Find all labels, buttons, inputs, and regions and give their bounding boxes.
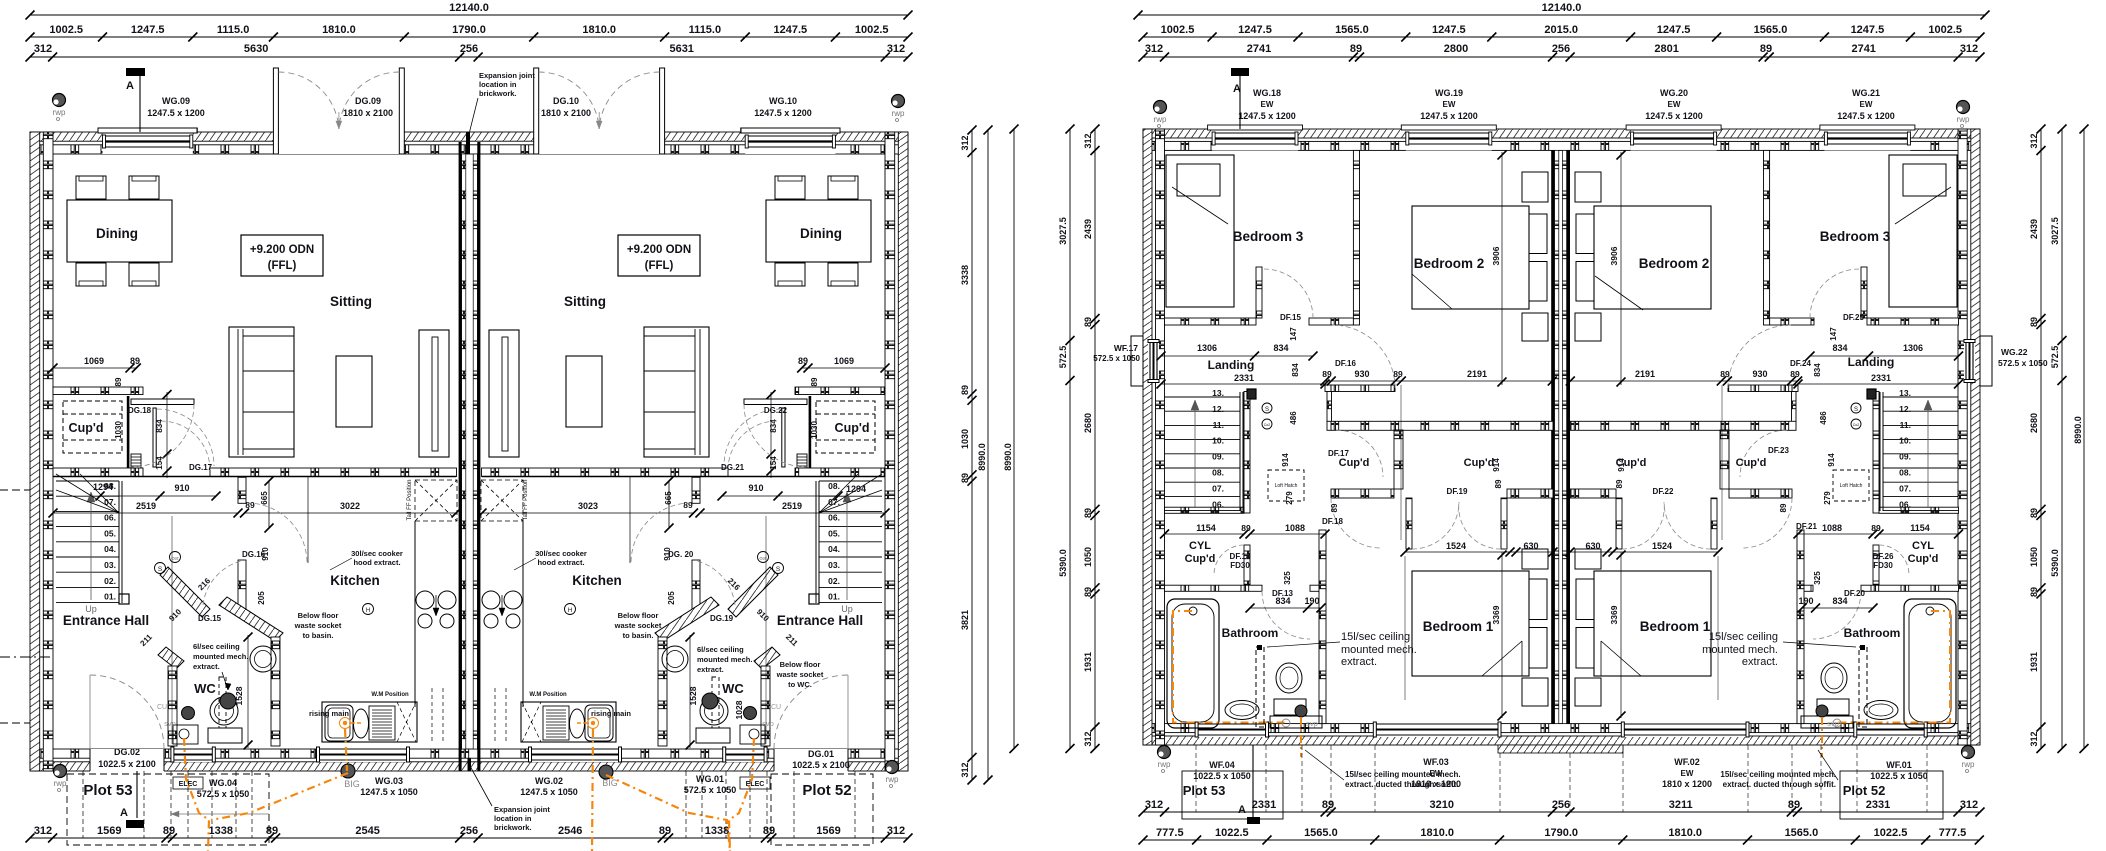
svg-text:89: 89	[659, 825, 671, 837]
svg-text:Expansion joint: Expansion joint	[494, 805, 550, 814]
svg-text:665: 665	[260, 491, 269, 505]
svg-text:572.5 x 1050: 572.5 x 1050	[684, 785, 737, 795]
svg-text:1022.5: 1022.5	[1215, 827, 1249, 839]
svg-text:Kitchen: Kitchen	[572, 573, 622, 588]
svg-text:03.: 03.	[828, 560, 840, 570]
svg-text:DF.23: DF.23	[1768, 446, 1789, 455]
svg-text:06.: 06.	[1899, 499, 1911, 509]
svg-text:CU: CU	[157, 704, 167, 711]
svg-text:2015.0: 2015.0	[1544, 24, 1578, 36]
svg-text:12140.0: 12140.0	[449, 2, 489, 14]
svg-text:777.5: 777.5	[1156, 827, 1184, 839]
svg-text:6l/sec ceiling: 6l/sec ceiling	[193, 642, 240, 651]
svg-text:2331: 2331	[1866, 799, 1890, 811]
svg-text:1022.5 x 1050: 1022.5 x 1050	[1870, 771, 1928, 781]
svg-text:1002.5: 1002.5	[855, 24, 889, 36]
svg-text:1115.0: 1115.0	[689, 24, 721, 36]
svg-text:CYL: CYL	[1189, 540, 1211, 552]
svg-text:2519: 2519	[782, 501, 802, 511]
svg-text:1306: 1306	[1903, 343, 1923, 353]
svg-text:89: 89	[163, 825, 175, 837]
svg-text:312: 312	[1145, 43, 1163, 55]
svg-text:5630: 5630	[244, 43, 268, 55]
svg-text:154: 154	[769, 456, 778, 470]
svg-text:1247.5 x 1200: 1247.5 x 1200	[1238, 111, 1296, 121]
svg-text:312: 312	[2029, 731, 2039, 746]
svg-text:89: 89	[763, 825, 775, 837]
svg-text:BIG: BIG	[344, 779, 360, 789]
svg-text:1247.5: 1247.5	[1432, 24, 1466, 36]
svg-text:Dining: Dining	[96, 226, 138, 241]
svg-text:910: 910	[748, 483, 763, 493]
svg-text:brickwork.: brickwork.	[494, 823, 532, 832]
svg-text:hood extract.: hood extract.	[537, 558, 584, 567]
svg-text:to basin.: to basin.	[623, 631, 654, 640]
svg-text:DF.22: DF.22	[1653, 487, 1674, 496]
svg-text:S: S	[1265, 407, 1269, 413]
svg-text:89: 89	[2029, 317, 2039, 327]
svg-text:08.: 08.	[828, 481, 840, 491]
svg-text:914: 914	[1492, 458, 1501, 472]
svg-text:834: 834	[1291, 363, 1300, 377]
svg-text:1154: 1154	[1196, 523, 1216, 533]
svg-text:15l/sec ceiling: 15l/sec ceiling	[1341, 631, 1410, 643]
svg-text:WG.21: WG.21	[1852, 88, 1880, 98]
svg-text:8990.0: 8990.0	[1003, 443, 1013, 471]
svg-text:10.: 10.	[1899, 436, 1911, 446]
svg-text:waste socket: waste socket	[776, 670, 824, 679]
svg-text:1247.5: 1247.5	[131, 24, 165, 36]
svg-text:190: 190	[1798, 596, 1813, 606]
svg-text:1247.5: 1247.5	[1238, 24, 1272, 36]
svg-text:89: 89	[1330, 503, 1339, 512]
svg-text:01.: 01.	[104, 592, 116, 602]
svg-text:1022.5 x 2100: 1022.5 x 2100	[792, 760, 850, 770]
svg-text:1810 x 1200: 1810 x 1200	[1662, 779, 1712, 789]
svg-text:312: 312	[1960, 43, 1978, 55]
svg-text:89: 89	[1393, 369, 1403, 379]
svg-text:Cup'd: Cup'd	[1736, 457, 1767, 469]
svg-text:89: 89	[1720, 369, 1730, 379]
svg-text:Bedroom 3: Bedroom 3	[1820, 229, 1891, 244]
svg-text:02.: 02.	[828, 576, 840, 586]
svg-text:777.5: 777.5	[1939, 827, 1967, 839]
svg-text:DG.21: DG.21	[721, 463, 745, 472]
svg-text:1247.5 x 1200: 1247.5 x 1200	[147, 108, 205, 118]
svg-text:154: 154	[155, 456, 164, 470]
svg-text:rwp: rwp	[53, 108, 66, 117]
svg-text:279: 279	[1823, 491, 1832, 505]
svg-text:1565.0: 1565.0	[1754, 24, 1788, 36]
svg-text:1931: 1931	[2029, 652, 2039, 672]
svg-text:1294: 1294	[846, 484, 866, 494]
svg-text:08.: 08.	[1212, 468, 1224, 478]
svg-text:30l/sec cooker: 30l/sec cooker	[535, 549, 587, 558]
svg-text:WG.09: WG.09	[162, 96, 190, 106]
svg-text:DF.19: DF.19	[1447, 487, 1468, 496]
svg-text:A: A	[120, 807, 128, 819]
svg-text:3369: 3369	[1609, 605, 1619, 624]
svg-text:Cup'd: Cup'd	[69, 421, 104, 435]
svg-text:2439: 2439	[2029, 219, 2039, 239]
svg-text:486: 486	[1819, 411, 1828, 425]
svg-text:1565.0: 1565.0	[1304, 827, 1338, 839]
svg-text:2331: 2331	[1234, 373, 1254, 383]
svg-text:DG.01: DG.01	[808, 749, 834, 759]
svg-text:8990.0: 8990.0	[977, 443, 987, 471]
svg-text:DG.02: DG.02	[114, 747, 140, 757]
svg-text:89: 89	[1790, 369, 1800, 379]
svg-text:WG.19: WG.19	[1435, 88, 1463, 98]
svg-text:WG.10: WG.10	[769, 96, 797, 106]
svg-text:Cup'd: Cup'd	[1464, 457, 1495, 469]
svg-text:rwp: rwp	[1957, 115, 1970, 124]
svg-text:665: 665	[664, 491, 673, 505]
svg-text:630: 630	[1523, 541, 1538, 551]
svg-text:312: 312	[1083, 133, 1093, 148]
svg-text:1565.0: 1565.0	[1785, 827, 1819, 839]
svg-text:834: 834	[1273, 343, 1288, 353]
svg-text:WF.17: WF.17	[1114, 343, 1138, 353]
svg-text:DG.19: DG.19	[710, 614, 734, 623]
svg-text:89: 89	[810, 377, 819, 386]
svg-text:910: 910	[174, 483, 189, 493]
svg-text:312: 312	[887, 825, 905, 837]
svg-text:89: 89	[2029, 587, 2039, 597]
svg-text:Dining: Dining	[800, 226, 842, 241]
svg-text:89: 89	[1760, 43, 1772, 55]
svg-text:89: 89	[1241, 523, 1251, 533]
svg-text:1565.0: 1565.0	[1335, 24, 1369, 36]
svg-text:1247.5 x 1200: 1247.5 x 1200	[1420, 111, 1478, 121]
svg-text:1050: 1050	[1083, 547, 1093, 567]
svg-text:15l/sec ceiling mounted mech.: 15l/sec ceiling mounted mech.	[1720, 770, 1836, 779]
svg-text:256: 256	[1552, 799, 1570, 811]
svg-text:30l/sec cooker: 30l/sec cooker	[351, 549, 403, 558]
svg-text:06.: 06.	[1212, 499, 1224, 509]
svg-text:834: 834	[1832, 343, 1847, 353]
svg-text:DG.09: DG.09	[355, 96, 381, 106]
svg-text:279: 279	[1285, 491, 1294, 505]
svg-text:Plot 52: Plot 52	[802, 782, 851, 799]
svg-text:07.: 07.	[1899, 483, 1911, 493]
svg-text:89: 89	[683, 500, 693, 510]
svg-text:Below floor: Below floor	[780, 660, 821, 669]
svg-text:svp: svp	[762, 719, 774, 728]
svg-text:WF.02: WF.02	[1674, 757, 1700, 767]
svg-text:Bedroom 2: Bedroom 2	[1639, 256, 1710, 271]
svg-text:5390.0: 5390.0	[1058, 549, 1068, 577]
svg-text:1069: 1069	[834, 356, 854, 366]
svg-text:Tall FF Position: Tall FF Position	[407, 479, 413, 520]
svg-text:2800: 2800	[1444, 43, 1468, 55]
svg-text:3211: 3211	[1669, 799, 1693, 811]
svg-text:89: 89	[1615, 479, 1624, 488]
svg-text:572.5 x 1050: 572.5 x 1050	[1998, 358, 2048, 368]
svg-text:1030: 1030	[960, 429, 970, 449]
svg-text:Entrance Hall: Entrance Hall	[63, 613, 149, 628]
svg-text:WG.20: WG.20	[1660, 88, 1688, 98]
svg-text:325: 325	[1283, 571, 1292, 585]
svg-text:10.: 10.	[1212, 436, 1224, 446]
svg-text:FD30: FD30	[1230, 561, 1250, 570]
svg-text:05.: 05.	[104, 528, 116, 538]
svg-text:A: A	[126, 80, 134, 92]
svg-text:EW: EW	[1860, 100, 1873, 109]
svg-text:3027.5: 3027.5	[2050, 217, 2060, 245]
svg-text:DF.25: DF.25	[1843, 313, 1864, 322]
svg-text:1022.5: 1022.5	[1874, 827, 1908, 839]
svg-text:1069: 1069	[84, 356, 104, 366]
svg-text:06.: 06.	[828, 513, 840, 523]
svg-text:910: 910	[261, 547, 270, 561]
svg-text:Landing: Landing	[1208, 358, 1255, 372]
svg-text:brickwork.: brickwork.	[479, 89, 517, 98]
svg-text:572.5 x 1050: 572.5 x 1050	[197, 789, 250, 799]
svg-text:12140.0: 12140.0	[1542, 2, 1582, 14]
svg-text:09.: 09.	[1899, 452, 1911, 462]
svg-text:89: 89	[2029, 508, 2039, 518]
svg-text:svp: svp	[164, 719, 176, 728]
svg-text:DF.15: DF.15	[1280, 313, 1301, 322]
svg-text:15l/sec ceiling mounted mech.: 15l/sec ceiling mounted mech.	[1345, 770, 1461, 779]
svg-text:mounted mech.: mounted mech.	[697, 655, 752, 664]
svg-text:Cup'd: Cup'd	[1908, 553, 1939, 565]
svg-text:2331: 2331	[1871, 373, 1891, 383]
svg-text:147: 147	[1289, 327, 1298, 341]
svg-text:WC: WC	[194, 681, 216, 696]
svg-text:H: H	[568, 608, 572, 614]
svg-text:572.5 x 1050: 572.5 x 1050	[1093, 354, 1140, 363]
svg-text:Co2: Co2	[172, 557, 179, 561]
svg-text:2545: 2545	[355, 825, 379, 837]
svg-text:04.: 04.	[828, 544, 840, 554]
svg-text:Co2: Co2	[760, 557, 767, 561]
svg-text:1524: 1524	[1446, 541, 1466, 551]
svg-text:06.: 06.	[104, 513, 116, 523]
svg-text:CYL: CYL	[1912, 540, 1934, 552]
svg-text:89: 89	[1788, 799, 1800, 811]
svg-text:WG.22: WG.22	[2001, 347, 2028, 357]
svg-text:rwp: rwp	[54, 779, 67, 788]
svg-text:312: 312	[34, 43, 52, 55]
svg-text:1247.5 x 1200: 1247.5 x 1200	[1837, 111, 1895, 121]
svg-text:WG.02: WG.02	[535, 776, 563, 786]
svg-text:3906: 3906	[1491, 246, 1501, 265]
svg-text:312: 312	[887, 43, 905, 55]
svg-text:834: 834	[1832, 596, 1847, 606]
svg-text:2680: 2680	[2029, 413, 2039, 433]
svg-text:1810 x 2100: 1810 x 2100	[541, 108, 591, 118]
svg-text:256: 256	[1552, 43, 1570, 55]
svg-text:WG.04: WG.04	[209, 778, 237, 788]
svg-text:89: 89	[960, 385, 970, 395]
svg-text:3027.5: 3027.5	[1058, 217, 1068, 245]
svg-text:1247.5 x 1050: 1247.5 x 1050	[360, 787, 418, 797]
svg-text:1790.0: 1790.0	[452, 24, 486, 36]
svg-text:89: 89	[1350, 43, 1362, 55]
svg-text:1088: 1088	[1285, 523, 1305, 533]
svg-text:FD30: FD30	[1873, 561, 1893, 570]
svg-text:Below floor: Below floor	[618, 611, 659, 620]
svg-text:(FFL): (FFL)	[268, 260, 297, 272]
svg-text:DF.21: DF.21	[1796, 522, 1817, 531]
svg-text:89: 89	[266, 825, 278, 837]
svg-text:rising main: rising main	[591, 709, 631, 718]
svg-text:Expansion joint: Expansion joint	[479, 71, 535, 80]
svg-text:1247.5: 1247.5	[1851, 24, 1885, 36]
svg-text:EW: EW	[1443, 100, 1456, 109]
svg-text:12.: 12.	[1899, 404, 1911, 414]
svg-text:256: 256	[460, 43, 478, 55]
svg-text:EW: EW	[1668, 100, 1681, 109]
svg-text:6l/sec ceiling: 6l/sec ceiling	[697, 645, 744, 654]
svg-text:1030: 1030	[114, 421, 123, 439]
svg-text:(FFL): (FFL)	[645, 260, 674, 272]
svg-text:waste socket: waste socket	[294, 621, 342, 630]
svg-text:S: S	[776, 566, 781, 573]
svg-text:3023: 3023	[578, 501, 598, 511]
svg-text:1790.0: 1790.0	[1544, 827, 1578, 839]
svg-text:89: 89	[1083, 587, 1093, 597]
svg-text:Bedroom 1: Bedroom 1	[1423, 619, 1494, 634]
svg-text:3022: 3022	[340, 501, 360, 511]
svg-text:89: 89	[130, 356, 140, 366]
svg-text:3338: 3338	[960, 265, 970, 285]
svg-text:mounted mech.: mounted mech.	[1341, 644, 1417, 656]
svg-text:1115.0: 1115.0	[217, 24, 249, 36]
svg-text:89: 89	[1779, 503, 1788, 512]
svg-text:Bedroom 2: Bedroom 2	[1414, 256, 1485, 271]
svg-text:1247.5 x 1200: 1247.5 x 1200	[754, 108, 812, 118]
svg-text:Cup'd: Cup'd	[835, 421, 870, 435]
svg-text:1569: 1569	[97, 825, 121, 837]
svg-text:312: 312	[960, 135, 970, 150]
svg-text:rwp: rwp	[892, 109, 905, 118]
svg-text:rwp: rwp	[886, 775, 899, 784]
svg-text:11.: 11.	[1900, 420, 1911, 430]
svg-text:205: 205	[667, 591, 676, 605]
svg-text:DF.26: DF.26	[1873, 552, 1894, 561]
svg-text:914: 914	[1617, 458, 1626, 472]
svg-text:Co2: Co2	[1853, 423, 1860, 427]
svg-text:rising main: rising main	[309, 709, 349, 718]
svg-text:3821: 3821	[960, 610, 970, 630]
svg-text:834: 834	[1813, 363, 1822, 377]
svg-text:312: 312	[1960, 799, 1978, 811]
svg-text:+9.200 ODN: +9.200 ODN	[627, 244, 691, 256]
svg-text:1810.0: 1810.0	[1668, 827, 1702, 839]
svg-text:1030: 1030	[810, 421, 819, 439]
svg-text:2546: 2546	[558, 825, 582, 837]
svg-text:1154: 1154	[1910, 523, 1930, 533]
svg-text:extract.: extract.	[1341, 656, 1377, 668]
svg-text:11.: 11.	[1213, 420, 1224, 430]
svg-text:325: 325	[1813, 571, 1822, 585]
svg-text:312: 312	[34, 825, 52, 837]
svg-text:Sitting: Sitting	[564, 294, 606, 309]
svg-text:914: 914	[1827, 453, 1836, 467]
svg-text:1002.5: 1002.5	[1161, 24, 1195, 36]
svg-text:08.: 08.	[104, 481, 116, 491]
svg-text:W.M Position: W.M Position	[371, 692, 409, 698]
svg-text:1306: 1306	[1197, 343, 1217, 353]
svg-text:89: 89	[245, 500, 255, 510]
svg-text:Sitting: Sitting	[330, 294, 372, 309]
svg-text:1002.5: 1002.5	[1928, 24, 1962, 36]
svg-text:S: S	[158, 566, 163, 573]
svg-text:Plot 53: Plot 53	[1183, 783, 1226, 798]
svg-text:WG.18: WG.18	[1253, 88, 1281, 98]
svg-text:location in: location in	[479, 80, 517, 89]
svg-text:89: 89	[1871, 523, 1881, 533]
svg-text:312: 312	[960, 762, 970, 777]
svg-text:2741: 2741	[1851, 43, 1875, 55]
svg-text:1338: 1338	[705, 825, 729, 837]
svg-text:15l/sec ceiling: 15l/sec ceiling	[1709, 631, 1778, 643]
svg-text:WG.03: WG.03	[375, 776, 403, 786]
svg-text:extract.: extract.	[1742, 656, 1778, 668]
svg-text:89: 89	[1322, 369, 1332, 379]
svg-text:834: 834	[1275, 596, 1290, 606]
svg-text:+9.200 ODN: +9.200 ODN	[250, 244, 314, 256]
svg-text:EW: EW	[1261, 100, 1274, 109]
svg-text:EW: EW	[1681, 769, 1694, 778]
svg-text:rwp: rwp	[1158, 760, 1171, 769]
svg-text:extract.: extract.	[697, 665, 724, 674]
svg-text:BIG: BIG	[602, 778, 618, 788]
svg-text:1810.0: 1810.0	[1420, 827, 1454, 839]
svg-text:2741: 2741	[1247, 43, 1271, 55]
svg-text:1022.5 x 1050: 1022.5 x 1050	[1193, 771, 1251, 781]
svg-text:08.: 08.	[1899, 468, 1911, 478]
svg-text:1247.5: 1247.5	[1657, 24, 1691, 36]
svg-text:extract.: extract.	[193, 662, 220, 671]
svg-text:04.: 04.	[104, 544, 116, 554]
svg-text:07.: 07.	[1212, 483, 1224, 493]
svg-text:Loft Hatch: Loft Hatch	[1840, 483, 1863, 489]
svg-text:13.: 13.	[1899, 388, 1911, 398]
svg-text:3210: 3210	[1430, 799, 1454, 811]
svg-text:DG.10: DG.10	[553, 96, 579, 106]
svg-text:1050: 1050	[2029, 547, 2039, 567]
svg-text:1247.5 x 1050: 1247.5 x 1050	[520, 787, 578, 797]
svg-text:5631: 5631	[669, 43, 693, 55]
svg-text:Bathroom: Bathroom	[1222, 626, 1279, 640]
svg-text:256: 256	[460, 825, 478, 837]
svg-text:89: 89	[114, 377, 123, 386]
svg-text:rwp: rwp	[1154, 115, 1167, 124]
svg-text:to basin.: to basin.	[303, 631, 334, 640]
svg-text:03.: 03.	[104, 560, 116, 570]
svg-text:89: 89	[1322, 799, 1334, 811]
svg-text:Tall FF Position: Tall FF Position	[523, 479, 529, 520]
svg-text:Entrance Hall: Entrance Hall	[777, 613, 863, 628]
svg-text:89: 89	[1494, 479, 1503, 488]
svg-text:1028: 1028	[734, 700, 744, 719]
svg-text:Below floor: Below floor	[298, 611, 339, 620]
svg-text:89: 89	[960, 473, 970, 483]
svg-text:Plot 53: Plot 53	[83, 782, 132, 799]
svg-text:190: 190	[1304, 596, 1319, 606]
svg-text:12.: 12.	[1212, 404, 1224, 414]
svg-text:1569: 1569	[816, 825, 840, 837]
svg-text:05.: 05.	[828, 528, 840, 538]
svg-text:630: 630	[1585, 541, 1600, 551]
svg-text:1931: 1931	[1083, 652, 1093, 672]
svg-text:13.: 13.	[1212, 388, 1224, 398]
svg-text:89: 89	[1083, 508, 1093, 518]
